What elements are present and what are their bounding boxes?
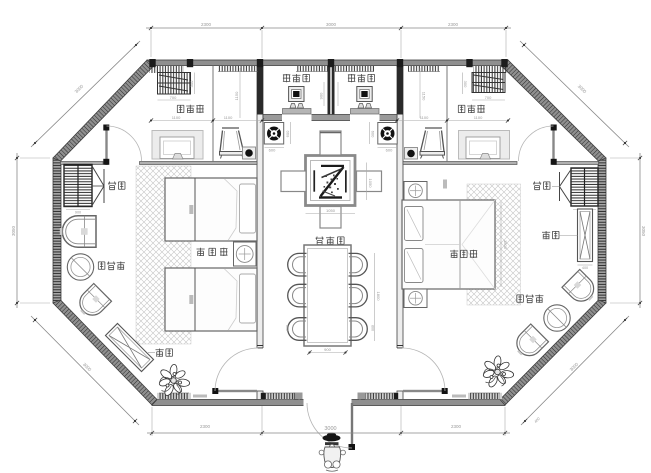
svg-text:3050: 3050 xyxy=(641,226,646,237)
svg-text:2300: 2300 xyxy=(448,22,459,27)
svg-text:1100: 1100 xyxy=(420,115,429,120)
svg-text:900: 900 xyxy=(75,211,81,215)
svg-text:600: 600 xyxy=(269,148,276,153)
svg-text:300: 300 xyxy=(463,81,468,88)
svg-text:2300: 2300 xyxy=(200,424,211,429)
svg-text:2300: 2300 xyxy=(201,22,212,27)
svg-text:3000: 3000 xyxy=(326,22,337,27)
svg-text:3050: 3050 xyxy=(11,225,16,236)
svg-text:900: 900 xyxy=(324,347,331,352)
svg-text:400: 400 xyxy=(582,266,588,270)
svg-text:1100: 1100 xyxy=(474,115,483,120)
svg-text:1050: 1050 xyxy=(368,179,373,189)
svg-text:1100: 1100 xyxy=(224,115,233,120)
svg-text:1800: 1800 xyxy=(503,240,508,250)
svg-text:900: 900 xyxy=(319,92,324,99)
svg-text:800: 800 xyxy=(371,325,375,331)
svg-text:700: 700 xyxy=(170,95,177,100)
svg-text:800: 800 xyxy=(286,325,290,331)
svg-text:700: 700 xyxy=(485,95,492,100)
svg-text:600: 600 xyxy=(371,131,376,138)
svg-text:1150: 1150 xyxy=(234,91,239,100)
svg-text:1050: 1050 xyxy=(326,208,336,213)
svg-text:300: 300 xyxy=(189,80,194,87)
svg-text:600: 600 xyxy=(285,130,290,137)
svg-text:2300: 2300 xyxy=(451,424,462,429)
svg-text:1150: 1150 xyxy=(422,92,427,101)
svg-text:1800: 1800 xyxy=(376,292,381,302)
svg-text:3000: 3000 xyxy=(324,426,336,432)
svg-text:1100: 1100 xyxy=(172,115,181,120)
svg-text:600: 600 xyxy=(386,148,393,153)
